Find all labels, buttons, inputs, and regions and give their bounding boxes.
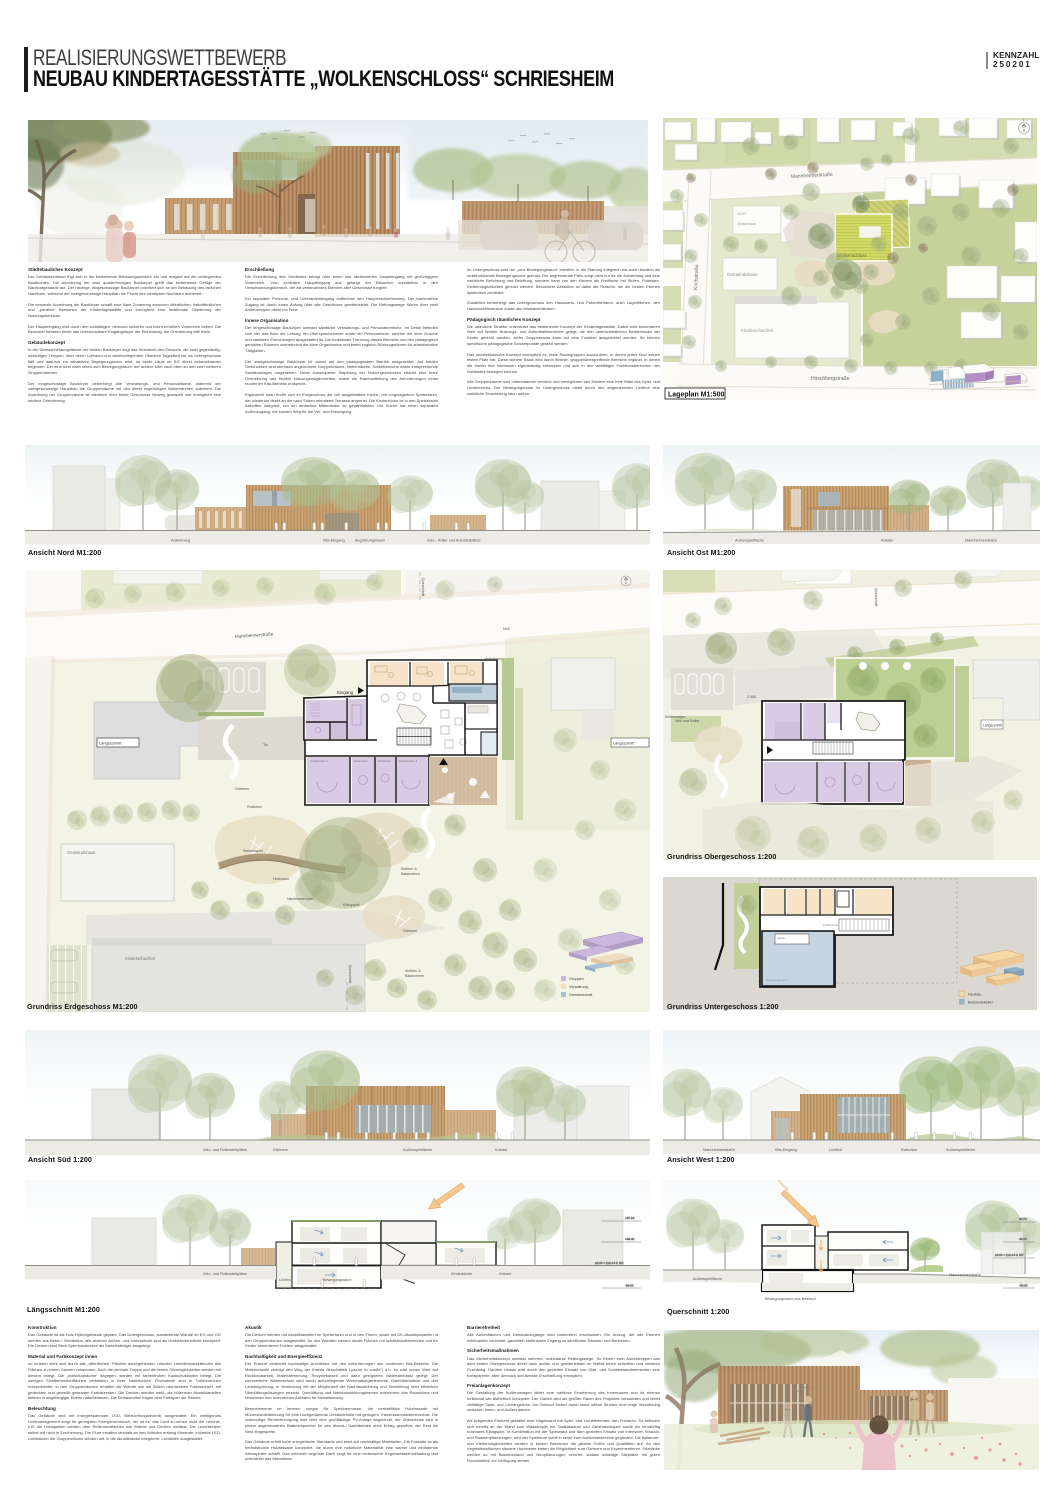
svg-text:+93.40: +93.40 [625,1237,635,1241]
svg-text:Außenspielfläche: Außenspielfläche [693,1277,722,1281]
svg-text:Hirschbergstraße: Hirschbergstraße [811,376,850,382]
svg-text:±0.00 = 113.44 ü. NN: ±0.00 = 113.44 ü. NN [995,1253,1023,1257]
svg-text:Geräte: Geräte [777,936,785,940]
svg-text:Längsschnitt: Längsschnitt [983,724,1002,728]
svg-text:Tor: Tor [263,743,269,747]
svg-text:Lichthof ob.: Lichthof ob. [823,923,839,927]
svg-text:Weidenspiel: Weidenspiel [243,849,263,853]
svg-text:Mannheimerstraße: Mannheimerstraße [965,539,997,543]
svg-text:Gärtnern: Gärtnern [235,787,249,791]
svg-text:49.70: 49.70 [1019,1217,1027,1221]
svg-text:Klängspiel: Klängspiel [343,903,360,907]
svg-text:Rutschen: Rutschen [247,805,262,809]
svg-text:Kinderwagen: Kinderwagen [665,715,685,719]
svg-text:Balancieren: Balancieren [401,872,420,876]
svg-text:Balancieren: Balancieren [405,974,424,978]
svg-text:IvDG: IvDG [737,211,746,216]
svg-text:Längsschnitt: Längsschnitt [613,742,635,746]
svg-text:Gemeindehaus: Gemeindehaus [727,272,758,277]
svg-text:Verwaltung: Verwaltung [569,985,588,989]
svg-text:Begrüßungsbaum: Begrüßungsbaum [355,539,385,543]
svg-text:Lageplan M1:500: Lageplan M1:500 [668,392,725,399]
svg-text:+97.10: +97.10 [625,1216,635,1220]
svg-text:Bestandskeller: Bestandskeller [968,1001,994,1005]
svg-text:Querschnitt: Querschnitt [421,578,425,596]
svg-text:Kräuter: Kräuter [499,1272,512,1276]
svg-text:Anlieferung: Anlieferung [171,539,190,543]
svg-text:2.965: 2.965 [747,695,756,699]
svg-text:Velo-, Roller und Autostellplä: Velo-, Roller und Autostellplätze [427,539,481,543]
svg-text:Kita-Eingang: Kita-Eingang [775,1148,797,1152]
svg-text:Kräuter: Kräuter [495,1148,508,1152]
svg-text:Gemeinschaft: Gemeinschaft [569,993,593,997]
svg-text:Holzwand: Holzwand [273,877,289,881]
svg-text:-89.30: -89.30 [625,1284,634,1288]
svg-text:Klettern &: Klettern & [405,969,421,973]
svg-text:Querschnitt: Querschnitt [874,588,878,606]
svg-text:±0.00 = 113.44 ü. NN: ±0.00 = 113.44 ü. NN [595,1261,623,1265]
svg-text:-89.30: -89.30 [1019,1284,1028,1288]
svg-text:Klettern &: Klettern & [401,867,417,871]
svg-text:Außenspielfläche: Außenspielfläche [403,1148,432,1152]
svg-text:Wohnhaus: Wohnhaus [737,221,756,226]
svg-text:Anlieferung: Anlieferung [485,657,503,661]
svg-text:Außenspielfläche: Außenspielfläche [735,539,764,543]
svg-text:Nebenraum: Nebenraum [354,759,368,763]
svg-text:Gemeindehaus: Gemeindehaus [67,850,95,855]
svg-text:Bewegungsraum: Bewegungsraum [766,978,789,982]
svg-text:Lichthof: Lichthof [279,1278,293,1282]
svg-text:Müll: Müll [503,627,510,631]
svg-text:Bewegungsraum aus Bestand: Bewegungsraum aus Bestand [765,1297,816,1301]
svg-text:Querschnitt: Querschnitt [348,965,352,983]
svg-text:Gärtnern: Gärtnern [273,1148,288,1152]
svg-text:Außenspielfläche: Außenspielfläche [946,1148,975,1152]
svg-text:Mannheimerstraße: Mannheimerstraße [703,1148,735,1152]
svg-text:Kita-Eingang: Kita-Eingang [323,539,345,543]
svg-text:Velo- und Rollerstellplätze: Velo- und Rollerstellplätze [203,1148,247,1152]
svg-text:Velo und Roller: Velo und Roller [675,719,700,723]
svg-text:Gruppen: Gruppen [569,977,584,981]
svg-text:Rutschen: Rutschen [901,1148,917,1152]
svg-text:Gärtnern: Gärtnern [403,929,417,933]
svg-text:Neubau: Neubau [968,993,981,997]
svg-text:Eingang: Eingang [337,690,354,695]
svg-text:Schlafraum: Schlafraum [378,759,391,763]
svg-text:Mannheimerstraße: Mannheimerstraße [949,1273,981,1277]
svg-text:Gruppenraum 1: Gruppenraum 1 [310,759,329,763]
svg-text:Kinderküche: Kinderküche [451,1272,472,1276]
svg-text:Velo- und Rollerstellplätze: Velo- und Rollerstellplätze [203,1272,247,1276]
svg-text:Längsschnitt: Längsschnitt [99,741,122,746]
svg-text:Lichthof: Lichthof [829,1148,843,1152]
svg-text:Bewegungsraum: Bewegungsraum [323,1278,352,1282]
svg-text:Kinderschachtel: Kinderschachtel [125,956,155,961]
svg-text:Kinderschachtel: Kinderschachtel [741,328,773,333]
svg-text:Nschtimmerspiel: Nschtimmerspiel [287,897,314,901]
svg-text:46.40: 46.40 [1019,1237,1027,1241]
svg-text:Kräuter: Kräuter [881,539,894,543]
svg-text:Gruppenraum 2: Gruppenraum 2 [399,759,418,763]
